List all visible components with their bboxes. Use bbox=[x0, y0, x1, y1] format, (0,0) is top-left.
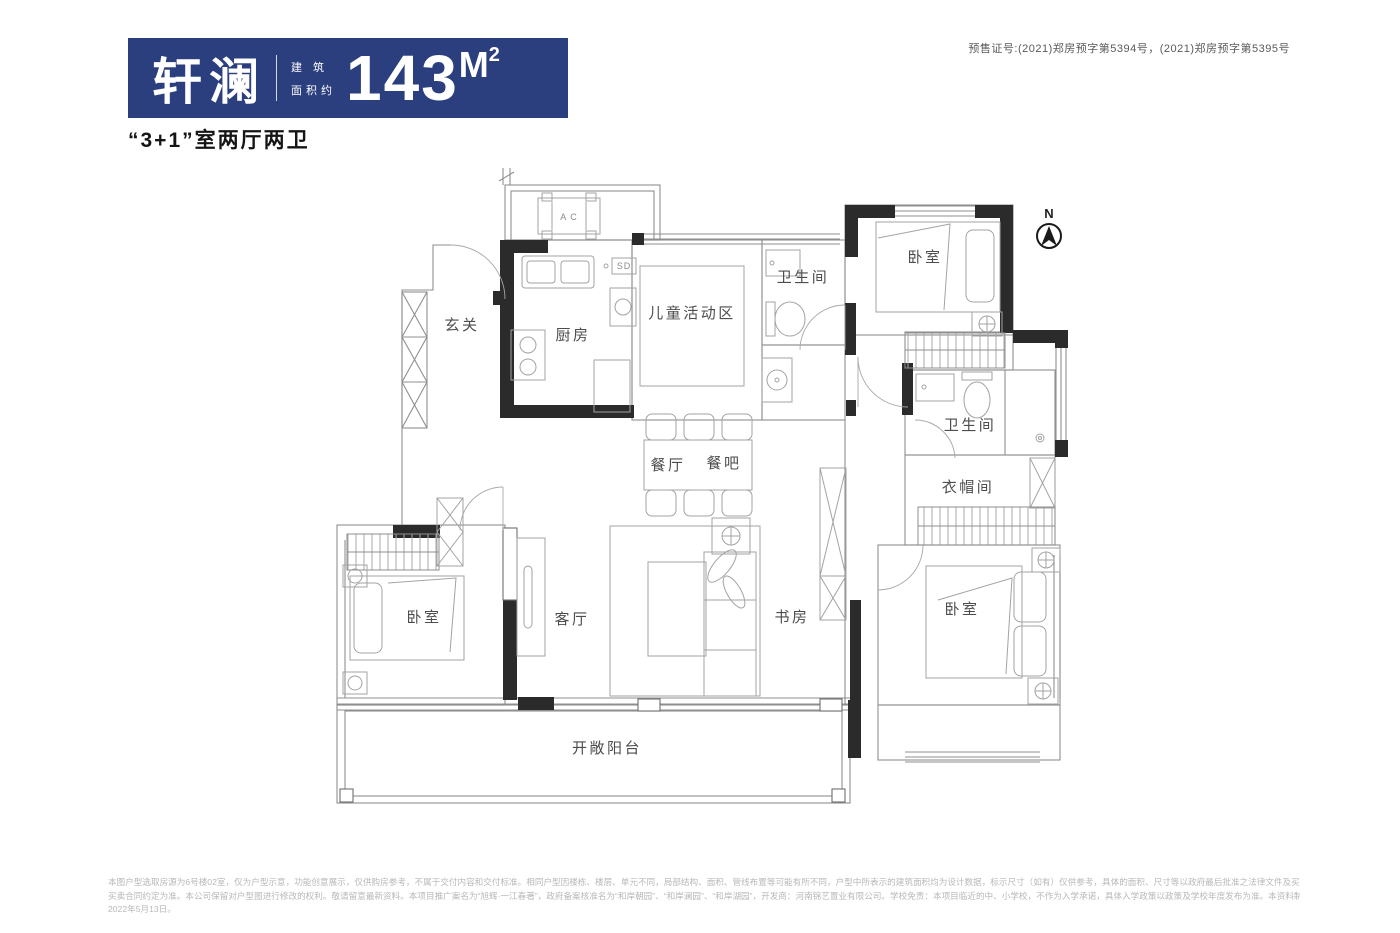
washer-label: SD bbox=[617, 261, 632, 271]
bath-top-fixtures bbox=[766, 250, 805, 336]
disclaimer-line2: 买卖合同约定为准。本公司保留对户型图进行修改的权利。敬请留意最新资料。本项目推广… bbox=[108, 890, 1300, 904]
floorplan-page: 轩澜 建 筑 面积约 143 M 2 预售证号:(2021)郑房预字第5394号… bbox=[0, 0, 1400, 933]
label-balcony: 开敞阳台 bbox=[572, 740, 642, 757]
disclaimer: 本图户型选取房源为6号楼02室，仅为户型示意，功能创意展示，仅供购房参考，不属于… bbox=[108, 876, 1300, 917]
ac-unit-label: A C bbox=[560, 212, 578, 222]
label-bedroom-master: 卧室 bbox=[944, 601, 979, 618]
label-kitchen: 厨房 bbox=[555, 327, 590, 344]
label-bathroom-top: 卫生间 bbox=[777, 269, 830, 286]
label-entry: 玄关 bbox=[444, 317, 479, 334]
washer bbox=[762, 358, 792, 402]
label-study: 书房 bbox=[774, 609, 809, 626]
bed-top-right bbox=[876, 222, 1002, 336]
label-cloakroom: 衣帽间 bbox=[942, 479, 995, 496]
label-dining: 餐厅 bbox=[650, 457, 685, 474]
cloakroom-fixtures bbox=[918, 458, 1060, 572]
label-bedroom-bottom-left: 卧室 bbox=[406, 609, 441, 626]
study-bookshelf bbox=[820, 468, 846, 620]
bed-master bbox=[926, 566, 1058, 704]
living-furniture bbox=[517, 518, 760, 696]
label-bedroom-top-right: 卧室 bbox=[907, 249, 942, 266]
label-dining-bar: 餐吧 bbox=[706, 455, 741, 472]
compass-n-label: N bbox=[1044, 206, 1053, 221]
disclaimer-line3: 2022年5月13日。 bbox=[108, 903, 1300, 917]
furniture bbox=[343, 193, 1060, 704]
kids-mat bbox=[640, 266, 744, 386]
floorplan-canvas: 玄关 厨房 儿童活动区 卫生间 卧室 餐厅 餐吧 卫生间 衣帽间 客厅 书房 卧… bbox=[0, 0, 1400, 933]
disclaimer-line1: 本图户型选取房源为6号楼02室，仅为户型示意，功能创意展示，仅供购房参考，不属于… bbox=[108, 876, 1300, 890]
north-compass-icon: N bbox=[1037, 206, 1061, 248]
label-kids-area: 儿童活动区 bbox=[648, 304, 736, 322]
label-living: 客厅 bbox=[554, 611, 589, 628]
label-bathroom-right: 卫生间 bbox=[944, 417, 997, 434]
